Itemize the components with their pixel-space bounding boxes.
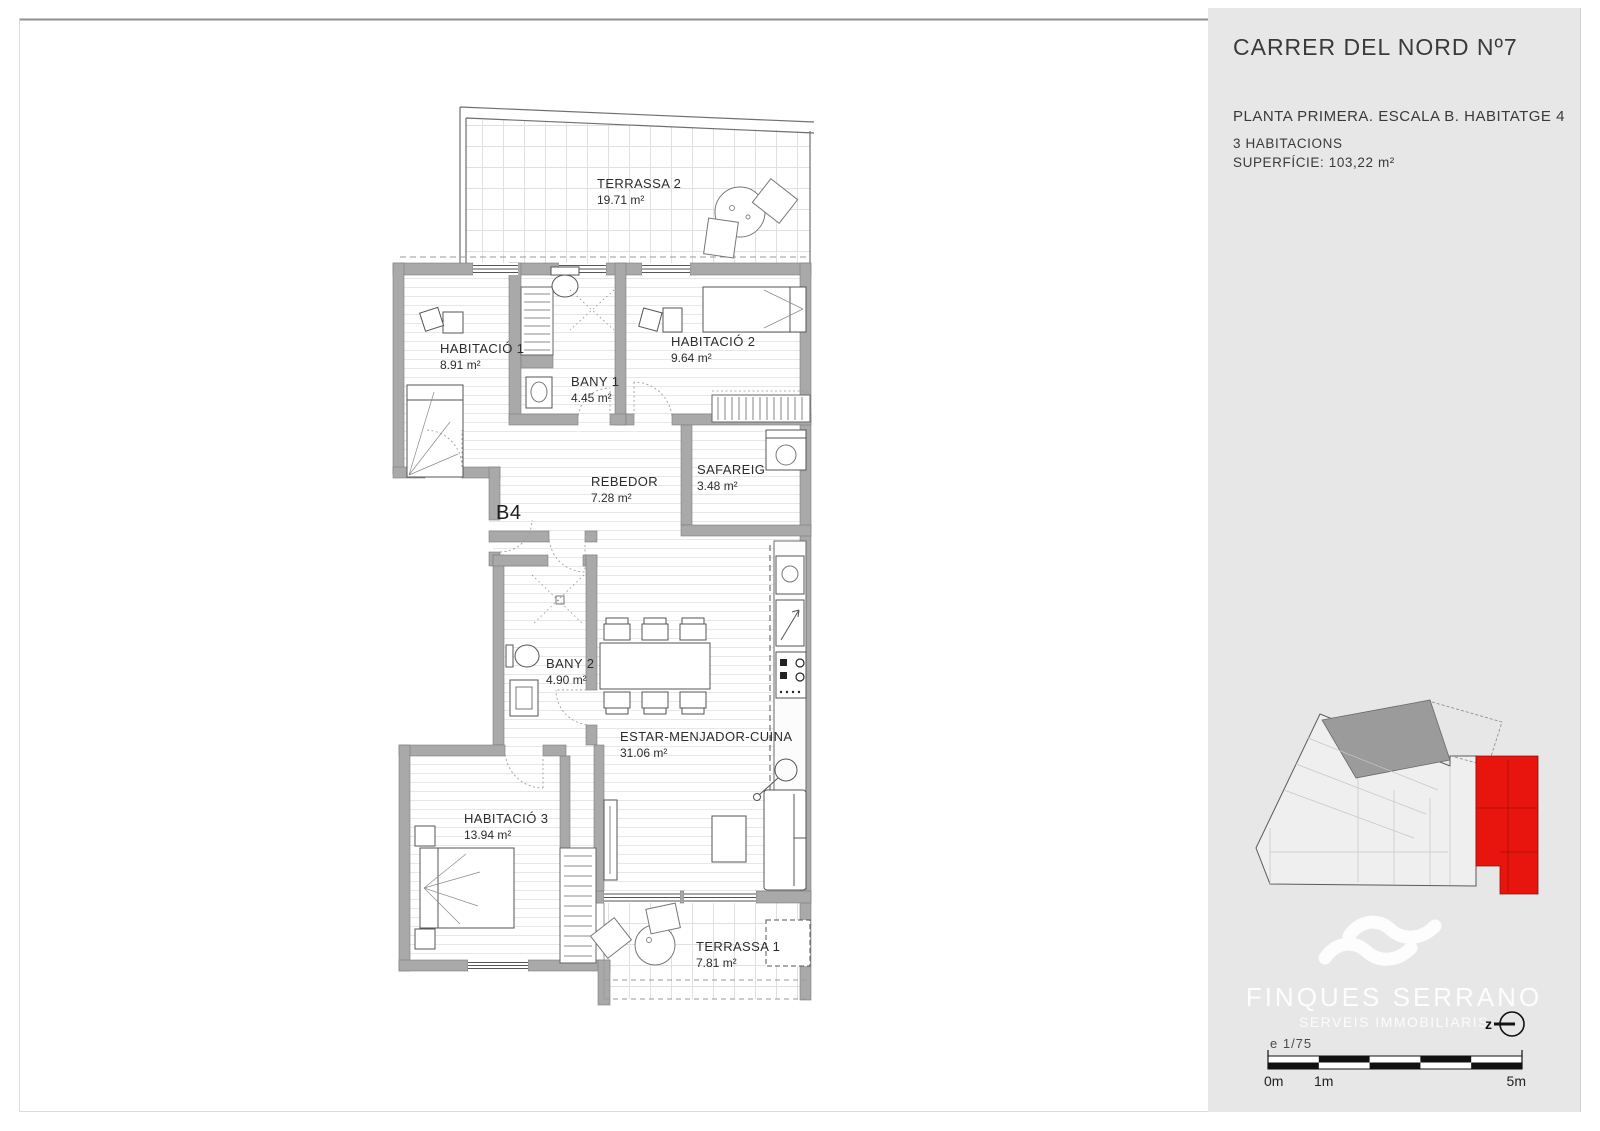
closet-icon [521,287,553,355]
scale-tick-1m: 1m [1314,1073,1333,1089]
room-area: 3.48 m² [697,479,765,495]
room-area: 4.90 m² [546,673,594,689]
chair-icon [604,624,630,640]
sofa-icon [764,790,806,890]
scale-ratio-label: e 1/75 [1270,1036,1312,1051]
room-area: 31.06 m² [620,746,792,762]
room-area: 8.91 m² [440,358,524,374]
unit-label: B4 [496,502,521,525]
room-name: BANY 1 [571,374,619,391]
room-name: TERRASSA 2 [597,176,681,193]
sink-icon [510,680,538,716]
chair-icon [680,624,706,640]
dining-furniture [600,618,710,714]
terrace-chair-icon [704,218,739,258]
sidebar-graphics: z e 1/75 0m 1m 5m [1208,8,1580,1112]
scale-bar: 0m 1m 5m [1264,1050,1526,1089]
key-plan-highlight [1476,756,1538,894]
nightstand-icon [415,929,435,949]
room-area: 9.64 m² [671,351,755,367]
key-plan [1256,700,1538,894]
room-area: 19.71 m² [597,193,681,209]
toilet-icon [551,267,579,275]
room-name: HABITACIÓ 3 [464,811,548,828]
desk-icon [663,308,682,332]
room-label-habitacio-2: HABITACIÓ 2 9.64 m² [671,334,755,366]
room-name: BANY 2 [546,656,594,673]
scale-tick-5m: 5m [1507,1073,1526,1089]
room-name: ESTAR-MENJADOR-CUINA [620,729,792,746]
info-sidebar: CARRER DEL NORD Nº7 PLANTA PRIMERA. ESCA… [1208,8,1581,1112]
bed-icon [703,287,806,332]
room-area: 13.94 m² [464,828,548,844]
washer-icon [766,430,806,470]
room-label-bany-2: BANY 2 4.90 m² [546,656,594,688]
chair-icon [642,624,668,640]
chair-icon [642,692,668,708]
room-label-estar-menjador-cuina: ESTAR-MENJADOR-CUINA 31.06 m² [620,729,792,761]
room-name: TERRASSA 1 [696,939,780,956]
toilet-icon [506,645,513,667]
nightstand-icon [415,826,435,846]
bed-icon [407,385,463,477]
floorplan-sheet: TERRASSA 2 19.71 m² HABITACIÓ 1 8.91 m² … [0,0,1600,1131]
room-area: 7.81 m² [696,956,780,972]
room-name: HABITACIÓ 2 [671,334,755,351]
room-label-habitacio-1: HABITACIÓ 1 8.91 m² [440,341,524,373]
room-label-habitacio-3: HABITACIÓ 3 13.94 m² [464,811,548,843]
room-name: HABITACIÓ 1 [440,341,524,358]
brand-name: FINQUES SERRANO [1208,982,1580,1013]
chair-icon [680,692,706,708]
room-label-rebedor: REBEDOR 7.28 m² [591,474,658,506]
room-area: 7.28 m² [591,491,658,507]
room-label-terrassa-2: TERRASSA 2 19.71 m² [597,176,681,208]
brand-waves-icon [1325,922,1435,959]
coffee-table-icon [712,816,746,862]
room-name: SAFAREIG [697,462,765,479]
laundry-fixtures [766,430,806,470]
room-label-terrassa-1: TERRASSA 1 7.81 m² [696,939,780,971]
room-label-safareig: SAFAREIG 3.48 m² [697,462,765,494]
room-label-bany-1: BANY 1 4.45 m² [571,374,619,406]
kitchen-sink-icon [776,556,804,594]
room-area: 4.45 m² [571,391,619,407]
chair-icon [604,692,630,708]
scale-tick-0m: 0m [1264,1073,1283,1089]
desk-icon [443,312,463,333]
room-name: REBEDOR [591,474,658,491]
brand-tagline: SERVEIS IMMOBILIARIS [1208,1014,1580,1030]
dining-table-icon [600,643,710,689]
bed-icon [420,848,514,928]
chair-icon [639,308,662,331]
